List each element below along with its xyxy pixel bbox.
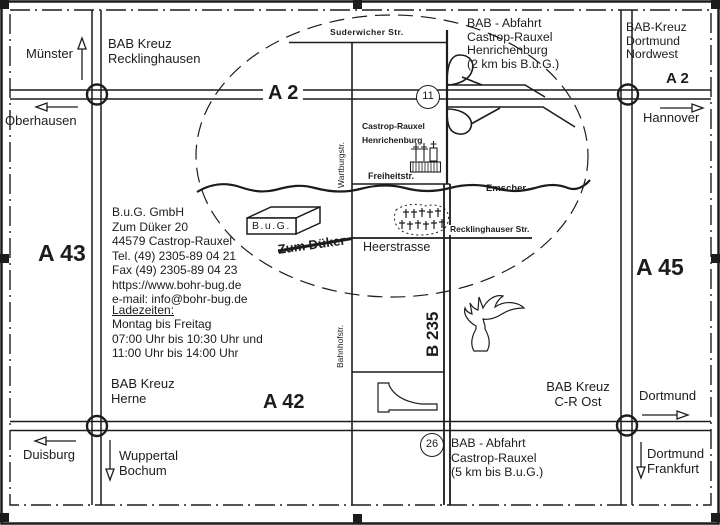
map-drawing: [0, 0, 720, 525]
exit-south-text: BAB - Abfahrt Castrop-Rauxel (5 km bis B…: [451, 436, 543, 480]
outer-frame: [2, 2, 719, 524]
destination-muenster: Münster: [26, 47, 73, 62]
street-freiheitstrasse: Freiheitstr.: [368, 171, 414, 181]
highway-label-b235: B 235: [423, 312, 443, 357]
company-marker-label: B.u.G.: [252, 220, 291, 232]
street-wartburgstrasse: Wartburgstr.: [336, 142, 346, 188]
arrow-down-frankfurt-icon: [637, 442, 645, 478]
exit-number-26: 26: [420, 433, 444, 457]
company-address: B.u.G. GmbH Zum Düker 20 44579 Castrop-R…: [112, 205, 248, 307]
road-b235: [444, 30, 450, 505]
destination-dortmund-frankfurt: Dortmund Frankfurt: [647, 447, 704, 477]
highway-label-a2-right: A 2: [666, 70, 689, 87]
highway-a2-lines: [10, 90, 711, 99]
destination-duisburg: Duisburg: [23, 448, 75, 463]
exit-number-11: 11: [416, 85, 440, 109]
loading-hours: Montag bis Freitag 07:00 Uhr bis 10:30 U…: [112, 317, 263, 361]
arrow-up-muenster-icon: [78, 38, 86, 80]
destination-dortmund: Dortmund: [639, 389, 696, 404]
highway-label-a2: A 2: [263, 82, 303, 105]
interchange-dortmund-nw: BAB-Kreuz Dortmund Nordwest: [626, 21, 687, 62]
frame-handles: [0, 0, 720, 523]
arrow-left-duisburg-icon: [35, 437, 76, 445]
street-recklinghauser: Recklinghauser Str.: [448, 225, 531, 235]
interchange-herne: BAB Kreuz Herne: [111, 377, 175, 407]
arrow-right-dortmund-icon: [642, 411, 688, 419]
loading-hours-title: Ladezeiten:: [112, 303, 174, 318]
street-heerstrasse: Heerstrasse: [363, 240, 430, 254]
destination-oberhausen: Oberhausen: [5, 114, 77, 129]
highway-a42-lines: [10, 422, 711, 431]
destination-hannover: Hannover: [643, 111, 699, 126]
highway-label-a43: A 43: [38, 240, 86, 266]
arrow-left-oberhausen-icon: [36, 103, 78, 111]
destination-wuppertal-bochum: Wuppertal Bochum: [119, 449, 178, 479]
interchange-recklinghausen: BAB Kreuz Recklinghausen: [108, 37, 201, 67]
highway-label-a42: A 42: [258, 391, 310, 414]
arrow-down-wuppertal-icon: [106, 440, 114, 480]
street-suderwicher: Suderwicher Str.: [330, 28, 403, 38]
exit-north-text: BAB - Abfahrt Castrop-Rauxel Henrichenbu…: [467, 17, 559, 71]
emscher-river-line: [197, 180, 590, 192]
street-bahnhofstrasse: Bahnhofstr.: [335, 325, 345, 368]
cemetery-icon: [394, 204, 448, 235]
highway-label-a45: A 45: [636, 254, 684, 280]
interchange-cr-ost: BAB Kreuz C-R Ost: [540, 380, 616, 410]
ramp-structure-icon: [378, 383, 437, 412]
directions-map: Münster BAB Kreuz Recklinghausen Oberhau…: [0, 0, 720, 525]
place-castrop-rauxel: Castrop-Rauxel Henrichenburg: [362, 120, 425, 147]
river-emscher-label: Emscher: [486, 184, 526, 195]
tree-icon: [465, 296, 524, 351]
